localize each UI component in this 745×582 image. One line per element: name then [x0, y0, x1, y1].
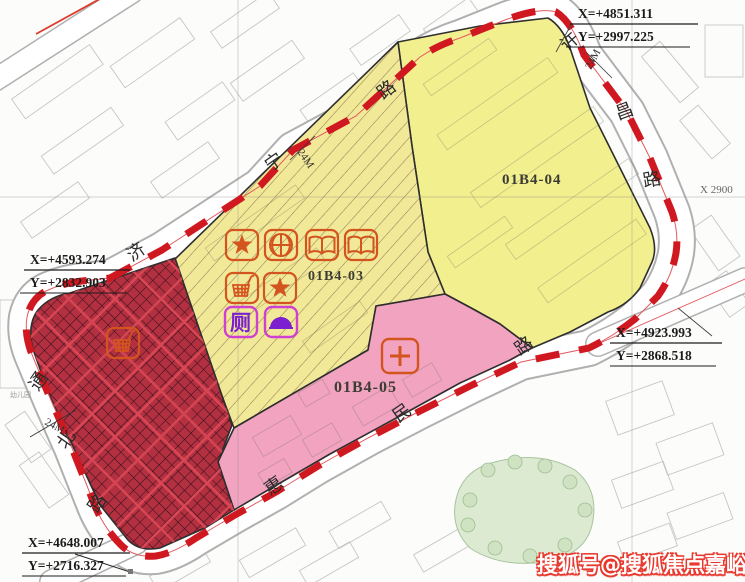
- coord-y: Y=+2716.327: [28, 558, 104, 573]
- sohu-watermark: 搜狐号@搜狐焦点嘉峪关站: [537, 549, 745, 579]
- coord-x: X=+4593.274: [30, 252, 106, 267]
- coord-y: Y=+2832.903: [30, 275, 106, 290]
- coord-y: Y=+2868.518: [616, 348, 692, 363]
- kindergarten-label: 幼儿园: [10, 390, 31, 399]
- planning-map: X 2900 济 宁 路 通 北 路 许 昌 路 惠 民 路 24M 24M 2…: [0, 0, 745, 582]
- parcel-label-01B4-03: 01B4-03: [308, 269, 364, 284]
- coord-y: Y=+2997.225: [578, 29, 654, 44]
- parcel-label-01B4-04: 01B4-04: [502, 172, 562, 188]
- road-char: 路: [641, 168, 662, 192]
- parcel-label-01B4-05: 01B4-05: [334, 379, 397, 396]
- map-canvas: X 2900 济 宁 路 通 北 路 许 昌 路 惠 民 路 24M 24M 2…: [0, 0, 745, 582]
- coord-x: X=+4648.007: [28, 535, 104, 550]
- grid-label: X 2900: [700, 184, 733, 196]
- coord-x: X=+4923.993: [616, 325, 692, 340]
- toilet-char: 厕: [230, 311, 251, 335]
- coord-x: X=+4851.311: [578, 6, 653, 21]
- park-area: [455, 455, 594, 563]
